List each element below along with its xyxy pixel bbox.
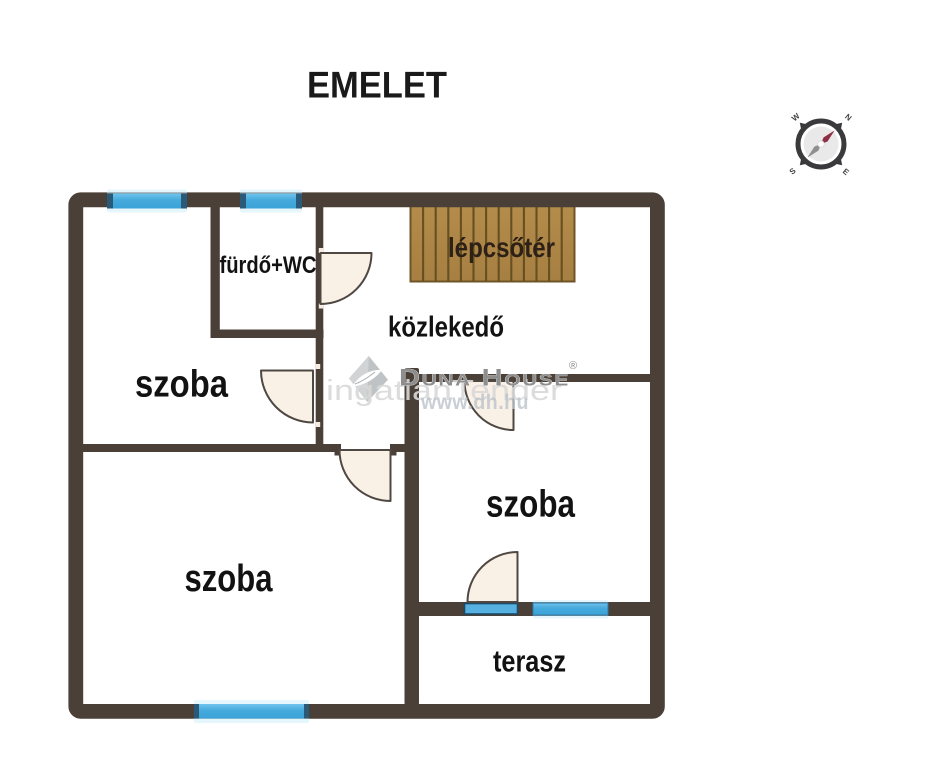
svg-text:szoba: szoba: [486, 484, 576, 526]
svg-text:szoba: szoba: [185, 558, 274, 600]
svg-text:®: ®: [569, 360, 577, 372]
svg-text:szoba: szoba: [135, 364, 229, 406]
svg-text:EMELET: EMELET: [307, 65, 447, 106]
svg-text:fürdő+WC: fürdő+WC: [220, 252, 317, 279]
svg-text:www.dh.hu: www.dh.hu: [420, 391, 529, 414]
svg-text:lépcsőtér: lépcsőtér: [448, 232, 555, 263]
svg-text:terasz: terasz: [493, 645, 566, 679]
svg-text:Duna House: Duna House: [399, 365, 570, 392]
svg-text:közlekedő: közlekedő: [388, 312, 504, 344]
